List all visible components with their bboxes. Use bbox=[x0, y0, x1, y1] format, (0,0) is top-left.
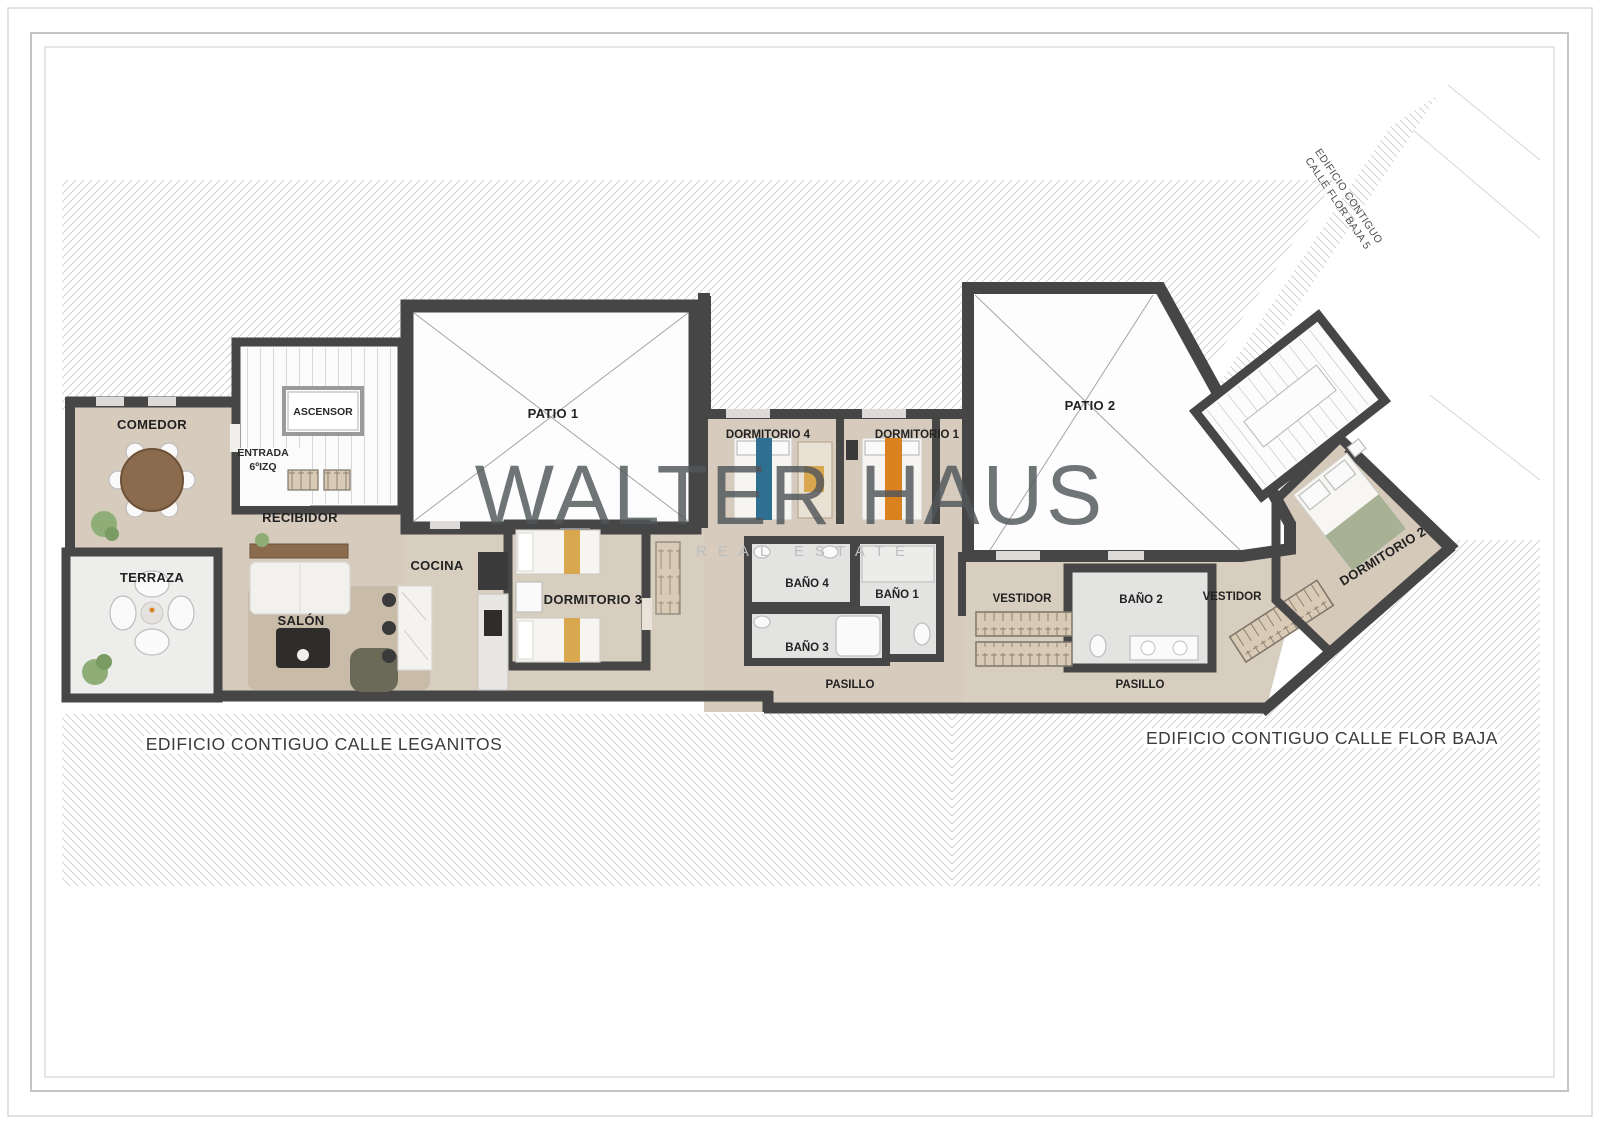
comedor-label: COMEDOR bbox=[117, 417, 187, 432]
dorm3-bed-2 bbox=[516, 618, 600, 662]
door-patio1-1 bbox=[430, 521, 460, 529]
window-comedor-2 bbox=[148, 397, 176, 406]
bano2-label: BAÑO 2 bbox=[1119, 593, 1162, 606]
cocina-label: COCINA bbox=[410, 558, 463, 573]
bano3-sink bbox=[754, 616, 770, 628]
stool-1 bbox=[382, 593, 396, 607]
kitchen-counter bbox=[478, 594, 508, 690]
pasillo-left-label: PASILLO bbox=[826, 679, 875, 691]
stool-3 bbox=[382, 649, 396, 663]
bano4-label: BAÑO 4 bbox=[785, 577, 829, 590]
dormitorio4-label: DORMITORIO 4 bbox=[726, 429, 811, 441]
patio2-label: PATIO 2 bbox=[1065, 398, 1116, 413]
bano1-toilet bbox=[914, 623, 930, 645]
fridge bbox=[478, 552, 508, 590]
window-patio2-1 bbox=[996, 551, 1040, 560]
stool-2 bbox=[382, 621, 396, 635]
oven bbox=[484, 610, 502, 636]
bano3-tub bbox=[836, 616, 880, 656]
watermark-name: WALTER HAUS bbox=[475, 448, 1105, 542]
patio1-label: PATIO 1 bbox=[528, 406, 579, 421]
watermark-tagline: REAL ESTATE bbox=[696, 543, 916, 560]
bano3-label: BAÑO 3 bbox=[785, 641, 828, 654]
ascensor-label: ASCENSOR bbox=[293, 406, 353, 418]
window-comedor-1 bbox=[96, 397, 124, 406]
bano2-vanity bbox=[1130, 636, 1198, 660]
terraza-plant-2 bbox=[96, 654, 112, 670]
floorplan-page: ASCENSOR bbox=[0, 0, 1600, 1124]
window-patio2-2 bbox=[1108, 551, 1144, 560]
dormitorio3-label: DORMITORIO 3 bbox=[544, 592, 643, 607]
vestidor-left-label: VESTIDOR bbox=[993, 593, 1052, 605]
dormitorio1-label: DORMITORIO 1 bbox=[875, 429, 960, 441]
vestidor-right-label: VESTIDOR bbox=[1203, 591, 1262, 603]
kitchen-island bbox=[398, 586, 432, 670]
flor-baja-label: EDIFICIO CONTIGUO CALLE FLOR BAJA bbox=[1146, 728, 1498, 748]
coffee-table bbox=[276, 628, 330, 668]
entrada-label-line2: 6ºIZQ bbox=[249, 461, 276, 473]
console-plant bbox=[255, 533, 269, 547]
leganitos-label: EDIFICIO CONTIGUO CALLE LEGANITOS bbox=[146, 734, 503, 754]
window-dorm1 bbox=[862, 409, 906, 418]
bano2-toilet bbox=[1090, 635, 1106, 657]
dorm3-door-gap bbox=[642, 598, 652, 630]
entrada-label-line1: ENTRADA bbox=[237, 447, 289, 459]
coffee-table-decor bbox=[297, 649, 309, 661]
comedor-plant-2 bbox=[105, 527, 119, 541]
salon-label: SALÓN bbox=[278, 613, 325, 628]
floorplan-drawing: ASCENSOR bbox=[0, 0, 1600, 1124]
recibidor-label: RECIBIDOR bbox=[262, 510, 338, 525]
terraza-label: TERRAZA bbox=[120, 570, 185, 585]
pasillo-right-label: PASILLO bbox=[1116, 679, 1165, 691]
dorm3-nightstand bbox=[516, 582, 542, 612]
bano1-label: BAÑO 1 bbox=[875, 588, 919, 601]
window-dorm4 bbox=[726, 409, 770, 418]
corridor-closets bbox=[656, 542, 680, 614]
